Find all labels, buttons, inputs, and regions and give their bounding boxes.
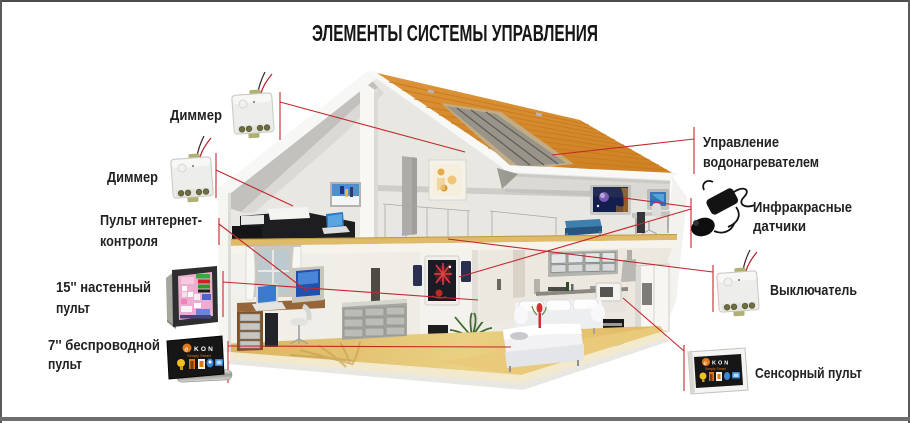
svg-text:контроля: контроля bbox=[100, 233, 158, 250]
svg-text:KON: KON bbox=[194, 346, 215, 353]
svg-text:ЭЛЕМЕНТЫ СИСТЕМЫ УПРАВЛЕНИЯ: ЭЛЕМЕНТЫ СИСТЕМЫ УПРАВЛЕНИЯ bbox=[312, 20, 598, 46]
svg-text:пульт: пульт bbox=[48, 356, 82, 373]
svg-text:Simply Smart: Simply Smart bbox=[705, 367, 726, 371]
svg-text:Simply Smart: Simply Smart bbox=[187, 353, 212, 358]
svg-text:Выключатель: Выключатель bbox=[770, 282, 857, 299]
svg-text:водонагревателем: водонагревателем bbox=[703, 154, 819, 171]
svg-text:Управление: Управление bbox=[703, 134, 779, 151]
svg-text:Пульт интернет-: Пульт интернет- bbox=[100, 212, 202, 229]
svg-text:датчики: датчики bbox=[753, 218, 806, 235]
svg-text:Сенсорный пульт: Сенсорный пульт bbox=[755, 365, 862, 382]
svg-text:Инфракрасные: Инфракрасные bbox=[753, 199, 852, 216]
svg-text:Диммер: Диммер bbox=[107, 169, 158, 186]
svg-text:KON: KON bbox=[712, 361, 730, 367]
svg-text:пульт: пульт bbox=[56, 300, 90, 317]
svg-text:7'' беспроводной: 7'' беспроводной bbox=[48, 337, 160, 354]
svg-text:Диммер: Диммер bbox=[170, 107, 222, 124]
svg-text:15'' настенный: 15'' настенный bbox=[56, 279, 151, 296]
